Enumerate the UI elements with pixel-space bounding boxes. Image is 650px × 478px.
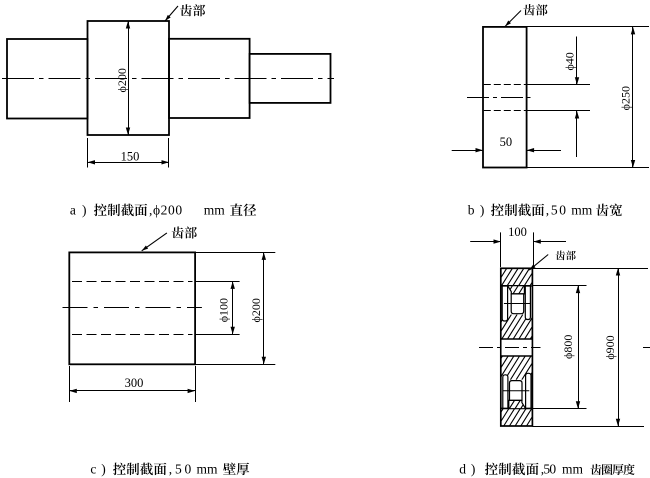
svg-text:ϕ100: ϕ100 <box>216 298 230 322</box>
svg-text:,ϕ200: ,ϕ200 <box>149 203 182 218</box>
svg-text:,50: ,50 <box>541 462 557 477</box>
svg-text:d): d) <box>459 462 475 477</box>
svg-text:,50: ,50 <box>169 462 192 477</box>
svg-text:b): b) <box>468 203 485 218</box>
svg-text:c): c) <box>90 462 105 477</box>
svg-text:mm: mm <box>562 462 584 477</box>
svg-text:,50: ,50 <box>546 203 566 218</box>
svg-text:ϕ250: ϕ250 <box>619 86 633 110</box>
svg-text:ϕ900: ϕ900 <box>603 335 617 359</box>
svg-text:100: 100 <box>508 225 527 239</box>
svg-text:a): a) <box>70 203 87 218</box>
svg-text:mm: mm <box>571 203 593 218</box>
svg-text:50: 50 <box>500 135 513 149</box>
svg-text:ϕ40: ϕ40 <box>563 52 577 70</box>
svg-text:mm: mm <box>204 203 226 218</box>
svg-text:ϕ800: ϕ800 <box>561 335 575 359</box>
svg-text:ϕ200: ϕ200 <box>249 298 263 322</box>
svg-text:300: 300 <box>125 376 144 390</box>
svg-text:150: 150 <box>121 149 140 163</box>
svg-text:ϕ200: ϕ200 <box>115 68 129 92</box>
svg-text:mm: mm <box>197 462 219 477</box>
